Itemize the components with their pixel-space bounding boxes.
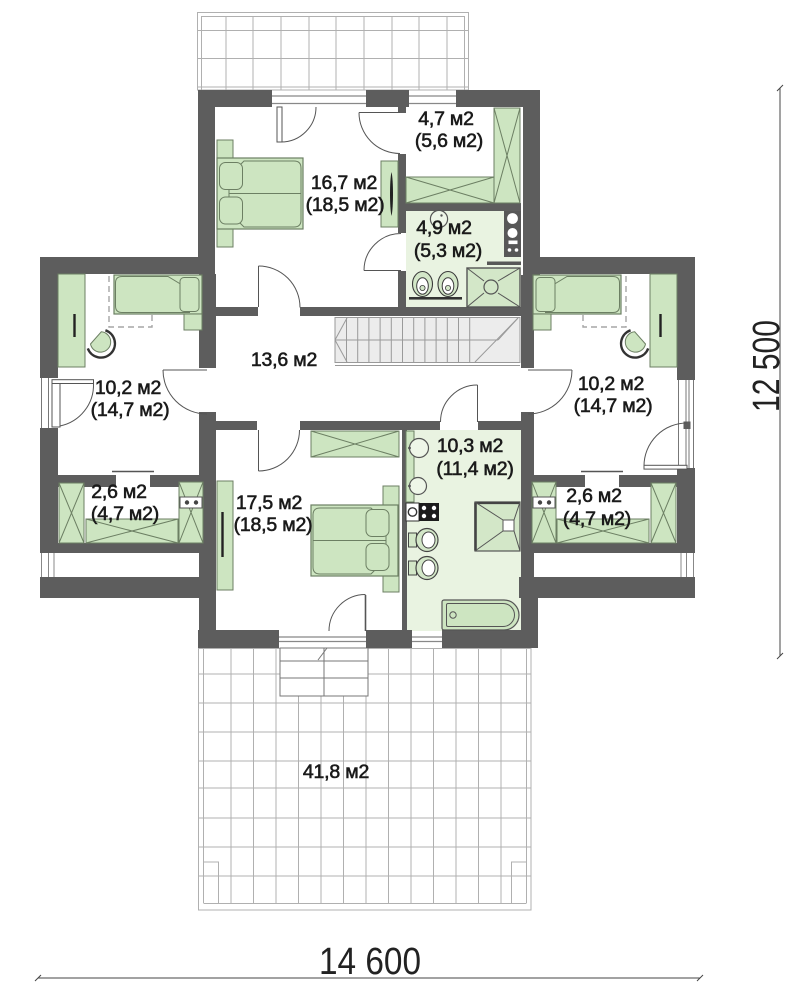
svg-text:12 500: 12 500 [746, 320, 788, 412]
svg-text:2,6 м2: 2,6 м2 [91, 481, 147, 503]
svg-text:41,8 м2: 41,8 м2 [303, 761, 369, 783]
svg-text:(5,6 м2): (5,6 м2) [415, 130, 483, 152]
svg-text:(4,7 м2): (4,7 м2) [91, 503, 159, 525]
svg-text:(4,7 м2): (4,7 м2) [563, 508, 631, 530]
svg-text:(18,5 м2): (18,5 м2) [306, 194, 385, 216]
svg-text:(18,5 м2): (18,5 м2) [234, 514, 313, 536]
svg-text:(14,7 м2): (14,7 м2) [91, 399, 170, 421]
svg-text:(14,7 м2): (14,7 м2) [574, 395, 653, 417]
svg-text:10,2 м2: 10,2 м2 [578, 373, 644, 395]
svg-text:4,7 м2: 4,7 м2 [418, 108, 474, 130]
svg-text:17,5 м2: 17,5 м2 [236, 492, 302, 514]
svg-text:4,9 м2: 4,9 м2 [416, 217, 472, 239]
svg-text:10,2 м2: 10,2 м2 [95, 377, 161, 399]
svg-text:13,6 м2: 13,6 м2 [251, 349, 317, 371]
svg-text:10,3 м2: 10,3 м2 [437, 435, 503, 457]
svg-text:2,6 м2: 2,6 м2 [566, 485, 622, 507]
svg-text:(11,4 м2): (11,4 м2) [436, 458, 513, 480]
svg-text:16,7 м2: 16,7 м2 [311, 172, 377, 194]
svg-text:14 600: 14 600 [319, 941, 421, 983]
svg-text:(5,3 м2): (5,3 м2) [414, 240, 482, 262]
